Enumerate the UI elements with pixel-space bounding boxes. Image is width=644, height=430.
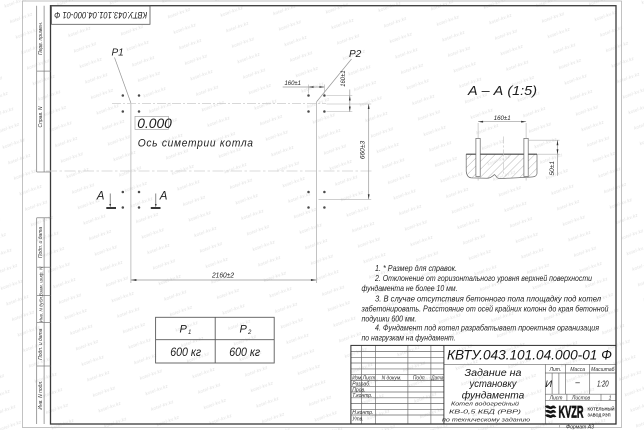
svg-text:4. Фундамент под котел разраба: 4. Фундамент под котел разрабатывает про… — [375, 324, 600, 333]
svg-text:50±1: 50±1 — [549, 161, 556, 176]
svg-text:600 кг: 600 кг — [170, 345, 201, 359]
svg-text:600 кг: 600 кг — [229, 345, 260, 359]
svg-text:Масса: Масса — [570, 367, 585, 373]
svg-text:Подп. и дата: Подп. и дата — [38, 227, 44, 259]
svg-text:КВТУ.043.101.04.000-01 Ф: КВТУ.043.101.04.000-01 Ф — [447, 348, 612, 363]
svg-text:забетонировать. Расстояние от: забетонировать. Расстояние от осей крайн… — [361, 304, 609, 313]
svg-text:Н.контр.: Н.контр. — [352, 410, 373, 416]
svg-text:1:20: 1:20 — [597, 379, 609, 388]
svg-text:Справ. N: Справ. N — [38, 106, 44, 127]
svg-text:Подп.: Подп. — [413, 375, 426, 381]
svg-text:N докум.: N докум. — [382, 375, 402, 381]
svg-text:Инв. N дубл.: Инв. N дубл. — [39, 296, 44, 323]
svg-text:Формат А3: Формат А3 — [566, 425, 595, 430]
svg-text:фундамента не более 10 мм.: фундамента не более 10 мм. — [362, 284, 458, 293]
svg-text:фундамента: фундамента — [462, 389, 525, 401]
svg-text:Котел водогрейный: Котел водогрейный — [451, 401, 520, 408]
svg-text:160±1: 160±1 — [494, 115, 511, 122]
svg-text:Р2: Р2 — [349, 49, 362, 60]
svg-text:Р: Р — [180, 324, 188, 336]
svg-text:1: 1 — [609, 395, 612, 401]
svg-text:2. Отклонение от горизонтально: 2. Отклонение от горизонтального уровня … — [374, 274, 592, 283]
svg-text:по нагрузкам на фундамент.: по нагрузкам на фундамент. — [362, 334, 456, 343]
svg-text:КВ-0,5 КБД (РВР): КВ-0,5 КБД (РВР) — [449, 410, 521, 416]
svg-text:Ось симетрии котла: Ось симетрии котла — [138, 137, 254, 149]
svg-text:Задание на: Задание на — [465, 367, 522, 379]
svg-text:160±1: 160±1 — [340, 70, 347, 87]
svg-text:3. В случае отсутствия бетонно: 3. В случае отсутствия бетонного пола пл… — [375, 294, 601, 303]
svg-text:установку: установку — [469, 378, 518, 390]
svg-text:ЗАВОД РЭП: ЗАВОД РЭП — [588, 413, 611, 418]
svg-text:KVZR: KVZR — [559, 404, 584, 422]
svg-text:Взам. шиф. N: Взам. шиф. N — [39, 266, 44, 296]
svg-text:Р: Р — [240, 324, 248, 336]
svg-text:2160±2: 2160±2 — [211, 271, 234, 280]
svg-text:2: 2 — [247, 330, 252, 336]
svg-text:КВТУ.043.101.04.000-01 Ф: КВТУ.043.101.04.000-01 Ф — [54, 10, 147, 20]
svg-text:Изм.Лист: Изм.Лист — [352, 375, 375, 381]
svg-text:Масштаб: Масштаб — [591, 367, 615, 373]
svg-text:А – А (1:5): А – А (1:5) — [467, 84, 537, 98]
svg-text:0.000: 0.000 — [137, 116, 172, 131]
svg-text:по техническому заданию: по техническому заданию — [442, 418, 531, 424]
svg-text:Утв.: Утв. — [352, 416, 363, 422]
svg-text:160±1: 160±1 — [285, 80, 302, 87]
svg-text:1. * Размер для справок.: 1. * Размер для справок. — [375, 264, 457, 273]
svg-text:1: 1 — [188, 330, 191, 336]
svg-text:Перв. примен.: Перв. примен. — [38, 22, 44, 55]
svg-text:подушки 600 мм.: подушки 600 мм. — [362, 314, 417, 323]
svg-text:А: А — [96, 190, 105, 202]
svg-text:КОТЕЛЬНЫЙ: КОТЕЛЬНЫЙ — [588, 407, 615, 412]
svg-text:А: А — [159, 190, 168, 202]
svg-text:–: – — [574, 378, 580, 387]
svg-text:Инв. N подл.: Инв. N подл. — [38, 380, 44, 409]
svg-text:Дата: Дата — [430, 375, 443, 381]
svg-text:Лит.: Лит. — [549, 367, 562, 373]
svg-text:И: И — [545, 379, 552, 390]
svg-text:660±3: 660±3 — [359, 141, 366, 160]
svg-text:Листов: Листов — [571, 395, 591, 401]
svg-text:Подп. и дата: Подп. и дата — [38, 328, 44, 360]
svg-text:Лист: Лист — [549, 395, 563, 401]
svg-text:Т.контр.: Т.контр. — [352, 393, 372, 399]
svg-text:Р1: Р1 — [112, 48, 124, 59]
